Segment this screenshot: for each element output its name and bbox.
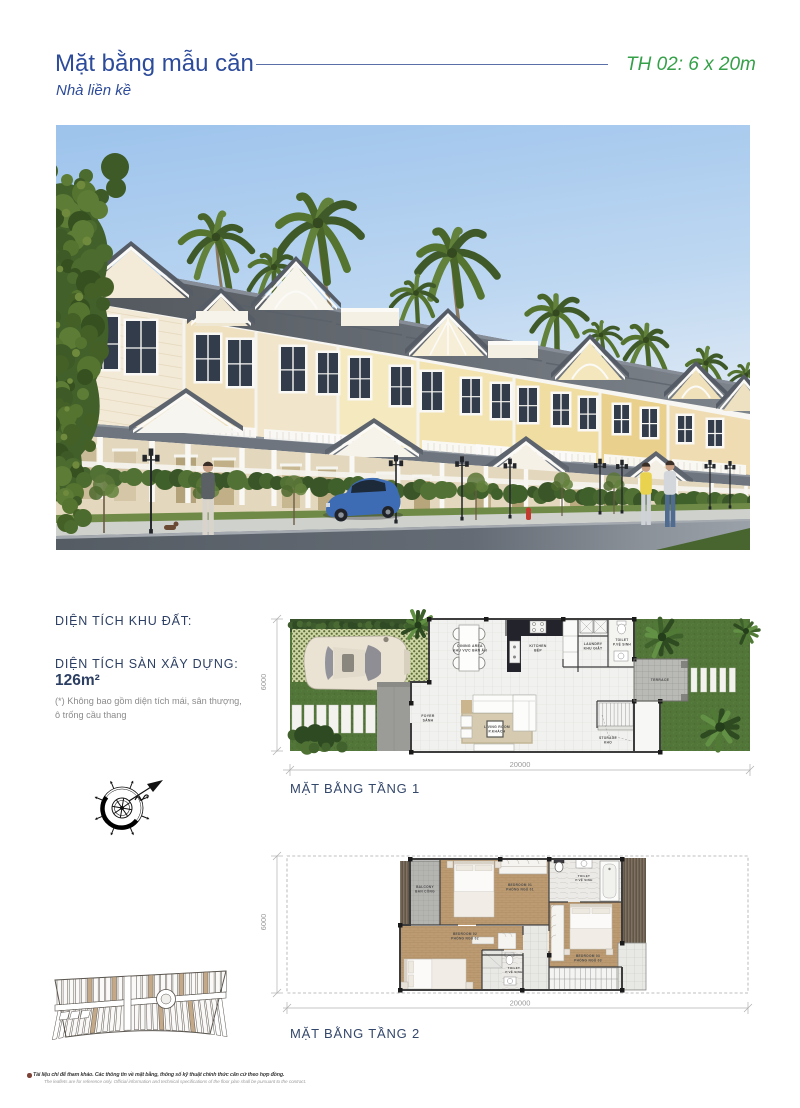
svg-text:BẾP: BẾP	[534, 648, 542, 653]
svg-text:KHU VỰC BÀN ĂN: KHU VỰC BÀN ĂN	[453, 648, 487, 653]
svg-text:BEDROOM 02: BEDROOM 02	[453, 932, 477, 936]
svg-text:BAN CÔNG: BAN CÔNG	[415, 888, 435, 893]
svg-text:KHO: KHO	[604, 740, 612, 744]
svg-text:KITCHEN: KITCHEN	[529, 644, 546, 648]
svg-text:KHU GIẶT: KHU GIẶT	[584, 646, 603, 651]
svg-text:LAUNDRY: LAUNDRY	[584, 642, 603, 646]
svg-text:BEDROOM 03: BEDROOM 03	[576, 954, 600, 958]
svg-text:PHÒNG NGỦ 02: PHÒNG NGỦ 02	[451, 935, 479, 940]
svg-text:PHÒNG NGỦ 03: PHÒNG NGỦ 03	[574, 957, 602, 962]
svg-text:P.KHÁCH: P.KHÁCH	[488, 729, 505, 734]
svg-text:P.VỆ SINH: P.VỆ SINH	[505, 969, 522, 974]
svg-text:20000: 20000	[510, 999, 531, 1008]
svg-text:TOILET: TOILET	[615, 638, 628, 642]
svg-text:PHÒNG NGỦ 01: PHÒNG NGỦ 01	[506, 886, 534, 891]
svg-text:FOYER: FOYER	[421, 714, 434, 718]
svg-text:LIVING ROOM: LIVING ROOM	[484, 725, 510, 729]
svg-text:BALCONY: BALCONY	[416, 885, 434, 889]
svg-text:DINING AREA: DINING AREA	[457, 644, 483, 648]
svg-text:6000: 6000	[259, 674, 268, 691]
svg-text:6000: 6000	[259, 914, 268, 931]
svg-text:SẢNH: SẢNH	[423, 718, 434, 723]
svg-text:BEDROOM 01: BEDROOM 01	[508, 883, 532, 887]
svg-text:STORAGE: STORAGE	[599, 736, 617, 740]
svg-text:P.VỆ SINH: P.VỆ SINH	[613, 641, 631, 646]
svg-text:TERRACE: TERRACE	[651, 678, 670, 682]
svg-text:P.VỆ SINH: P.VỆ SINH	[575, 877, 592, 882]
svg-text:20000: 20000	[510, 760, 531, 769]
